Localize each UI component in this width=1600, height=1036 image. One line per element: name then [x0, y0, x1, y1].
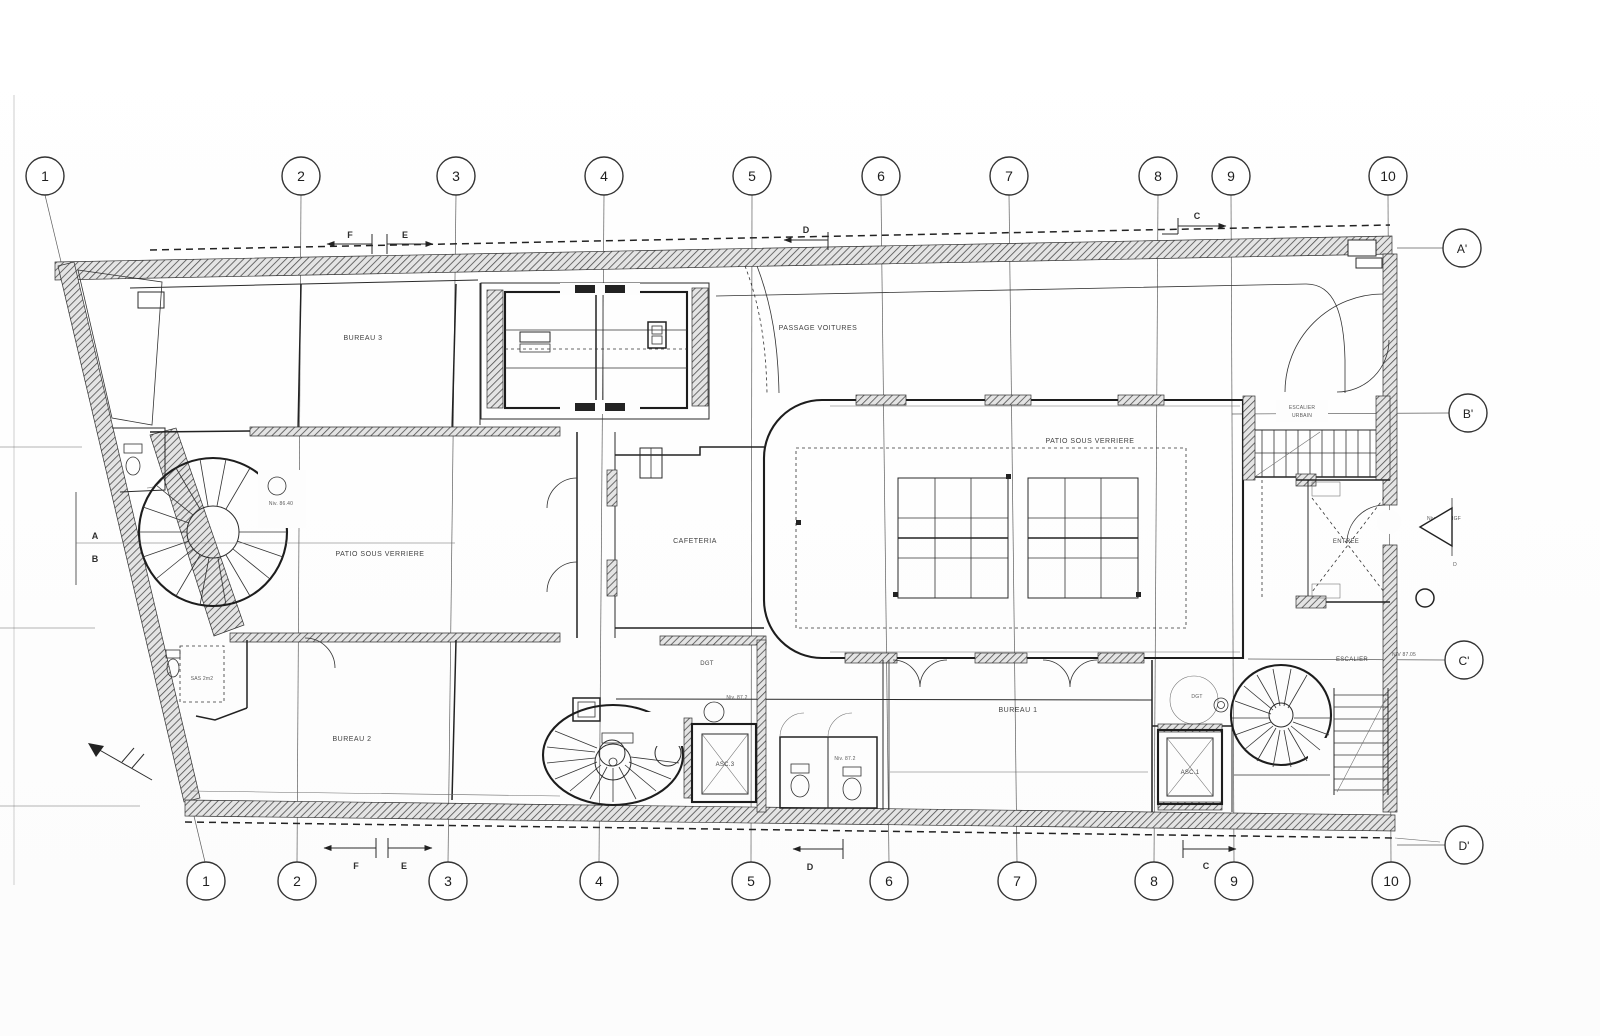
grid-bubble-bottom-1: 1 [187, 862, 225, 900]
section-label-e-top: E [402, 230, 408, 240]
room-label-dgt: DGT [1191, 694, 1202, 700]
svg-text:9: 9 [1230, 873, 1238, 889]
room-label-dgt-hall: DGT [700, 661, 714, 667]
svg-text:C': C' [1459, 654, 1470, 668]
room-label-cafeteria: CAFETERIA [673, 538, 717, 545]
stair-label-escalier-urbain-1: ESCALIER [1289, 405, 1316, 411]
car-lift [481, 283, 709, 419]
room-label-sas: SAS 2m2 [191, 676, 214, 682]
scanned-floor-plan-page: Niv. 86.40 BUREAU 3 PATIO SOUS VERRIERE … [0, 0, 1600, 1036]
room-label-patio-right: PATIO SOUS VERRIERE [1046, 438, 1135, 445]
stair-label-escalier-urbain-2: URBAIN [1292, 413, 1312, 419]
grid-bubble-row-a: A' [1443, 229, 1481, 267]
section-label-f-bottom: F [353, 861, 359, 871]
svg-text:1: 1 [41, 168, 49, 184]
room-label-bureau1: BUREAU 1 [998, 707, 1037, 714]
stair-level-note: Niv. 86.40 [269, 501, 293, 507]
grid-bubble-bottom-8: 8 [1135, 862, 1173, 900]
svg-text:4: 4 [600, 168, 608, 184]
section-label-c-bottom: C [1203, 861, 1210, 871]
section-label-c-top: C [1194, 211, 1201, 221]
svg-text:2: 2 [297, 168, 305, 184]
grid-bubble-bottom-3: 3 [429, 862, 467, 900]
room-label-patio-left: PATIO SOUS VERRIERE [336, 551, 425, 558]
section-label-a: A [92, 531, 99, 541]
bottom-core: ASC.3 Niv. 87.2 DGT Niv. 87.2 [543, 640, 1152, 812]
passage-voitures: PASSAGE VOITURES [716, 266, 1345, 393]
svg-text:7: 7 [1005, 168, 1013, 184]
level-note-wc: Niv. 87.2 [834, 756, 855, 762]
section-label-d-bottom: D [807, 862, 814, 872]
cafeteria: CAFETERIA [615, 447, 764, 628]
escalier-urbain: ESCALIER URBAIN [1243, 294, 1390, 480]
right-bottom-core: DGT ASC.1 ESCALIER NIV 87.05 [1152, 652, 1416, 812]
svg-text:8: 8 [1154, 168, 1162, 184]
grid-bubble-bottom-6: 6 [870, 862, 908, 900]
grid-bubble-row-d: D' [1445, 826, 1483, 864]
section-label-e-bottom: E [401, 861, 407, 871]
svg-text:6: 6 [885, 873, 893, 889]
svg-text:D': D' [1459, 839, 1470, 853]
room-label-entree: ENTREE [1333, 539, 1359, 545]
grid-bubble-top-4: 4 [585, 157, 623, 195]
svg-text:9: 9 [1227, 168, 1235, 184]
grid-bubble-bottom-9: 9 [1215, 862, 1253, 900]
patio-sous-verriere: PATIO SOUS VERRIERE [764, 395, 1243, 663]
svg-text:B': B' [1463, 407, 1473, 421]
svg-text:2: 2 [293, 873, 301, 889]
grid-bubble-top-7: 7 [990, 157, 1028, 195]
elevator-label-asc3: ASC.3 [716, 762, 735, 768]
stair-label-escalier: ESCALIER [1336, 657, 1368, 663]
grid-bubble-bottom-7: 7 [998, 862, 1036, 900]
floor-plan-drawing: Niv. 86.40 BUREAU 3 PATIO SOUS VERRIERE … [0, 0, 1600, 1036]
grid-bubble-top-5: 5 [733, 157, 771, 195]
section-mark-entree-d: D [1453, 562, 1457, 568]
room-label-passage-voitures: PASSAGE VOITURES [779, 325, 858, 332]
grid-bubble-top-9: 9 [1212, 157, 1250, 195]
section-label-d-top: D [803, 225, 810, 235]
level-note-escalier: NIV 87.05 [1392, 652, 1416, 658]
svg-text:A': A' [1457, 242, 1467, 256]
svg-text:8: 8 [1150, 873, 1158, 889]
svg-text:7: 7 [1013, 873, 1021, 889]
svg-text:5: 5 [747, 873, 755, 889]
grid-bubble-bottom-10: 10 [1372, 862, 1410, 900]
svg-text:6: 6 [877, 168, 885, 184]
svg-text:1: 1 [202, 873, 210, 889]
section-label-f-top: F [347, 230, 353, 240]
bureau-2: BUREAU 2 SAS 2m2 [166, 640, 560, 800]
grid-bubble-bottom-4: 4 [580, 862, 618, 900]
grid-bubble-top-6: 6 [862, 157, 900, 195]
level-note-asc3: Niv. 87.2 [726, 695, 747, 701]
grid-bubble-top-2: 2 [282, 157, 320, 195]
svg-text:3: 3 [452, 168, 460, 184]
entree: ENTREE Niv. 87.0 NGF D [1262, 474, 1461, 608]
grid-bubble-bottom-5: 5 [732, 862, 770, 900]
section-label-b: B [92, 554, 99, 564]
grid-bubble-top-10: 10 [1369, 157, 1407, 195]
room-label-bureau2: BUREAU 2 [332, 736, 371, 743]
elevator-label-asc1: ASC.1 [1181, 770, 1200, 776]
grid-bubble-top-3: 3 [437, 157, 475, 195]
grid-bubble-top-8: 8 [1139, 157, 1177, 195]
grid-bubble-row-c: C' [1445, 641, 1483, 679]
svg-text:3: 3 [444, 873, 452, 889]
svg-text:10: 10 [1380, 168, 1396, 184]
grid-bubble-top-1: 1 [26, 157, 64, 195]
left-rooms: BUREAU 3 PATIO SOUS VERRIERE [150, 283, 766, 668]
svg-text:10: 10 [1383, 873, 1399, 889]
svg-text:4: 4 [595, 873, 603, 889]
grid-bubble-bottom-2: 2 [278, 862, 316, 900]
grid-bubble-row-b: B' [1449, 394, 1487, 432]
svg-text:5: 5 [748, 168, 756, 184]
room-label-bureau3: BUREAU 3 [343, 335, 382, 342]
